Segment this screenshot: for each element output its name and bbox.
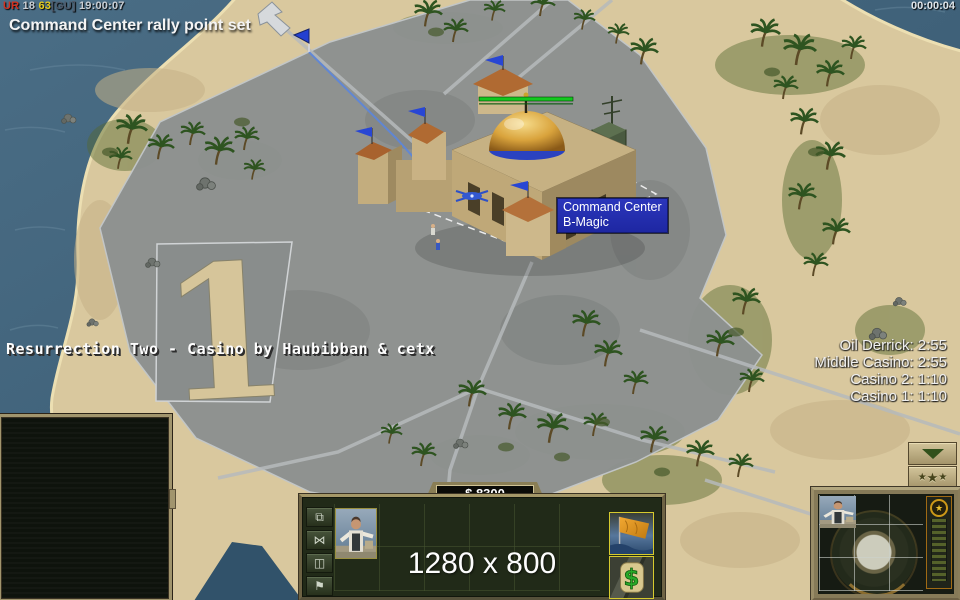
countdown-middle-casino: Middle Casino: 2:55 [814,354,947,371]
experience-bars [931,519,947,581]
cash-bounty-slot[interactable]: $ [609,556,654,599]
session-clock: 19:00:07 [76,0,125,12]
countdown-casino-2: Casino 2: 1:10 [814,371,947,388]
map-title: Resurrection Two - Casino by Haubibban &… [6,340,435,358]
control-bar: ⧉ ⋈ ◫ ⚑ 1280 x 800 $ [299,494,665,600]
command-panel: ★ [811,487,960,600]
beacon-flag-icon: ⚑ [314,579,325,593]
countdown-oil-derrick: Oil Derrick: 2:55 [814,337,947,354]
collapse-panel-button[interactable] [908,442,957,465]
tooltip-building-name: Command Center [563,200,662,215]
game-screen: 1 [0,0,960,600]
countdown-list: Oil Derrick: 2:55 Middle Casino: 2:55 Ca… [814,337,947,405]
capture-flag-slot[interactable] [609,512,654,555]
game-timer: 00:00:04 [911,0,955,12]
perf-label: UR [3,0,19,12]
rank-star-icon: ★ [938,473,947,483]
formation-icon: ⋈ [314,533,326,547]
dollar-icon: $ [624,566,640,592]
debug-readout: UR 18 63[GU] 19:00:07 [3,0,125,12]
rank-medal-icon: ★ [930,499,948,517]
event-message: Command Center rally point set [9,17,251,35]
countdown-casino-1: Casino 1: 1:10 [814,388,947,405]
minimap-notch [169,489,176,509]
health-bar [479,97,573,105]
unit-tooltip: Command Center B-Magic [557,198,668,233]
rank-star-icon: ★ [927,473,939,483]
rank-star-icon: ★ [918,473,927,483]
build-tag: [GU] [51,0,76,12]
minimap-panel[interactable] [0,414,172,600]
landing-pad-one: 1 [155,221,295,445]
pad-number: 1 [155,221,295,445]
experience-strip: ★ [926,496,952,589]
collapse-arrow-icon [922,449,944,459]
windows-button[interactable]: ⧉ [306,507,333,527]
generals-rank-button[interactable]: ★ ★ ★ [908,466,957,489]
perf-value: 18 [19,0,38,12]
windows-icon: ⧉ [315,510,324,524]
command-portrait[interactable] [820,496,856,528]
command-panel-inner: ★ [818,494,954,594]
tooltip-player-name: B-Magic [563,215,662,230]
resolution-text: 1280 x 800 [302,547,662,581]
fps-counter: 63 [38,0,51,12]
